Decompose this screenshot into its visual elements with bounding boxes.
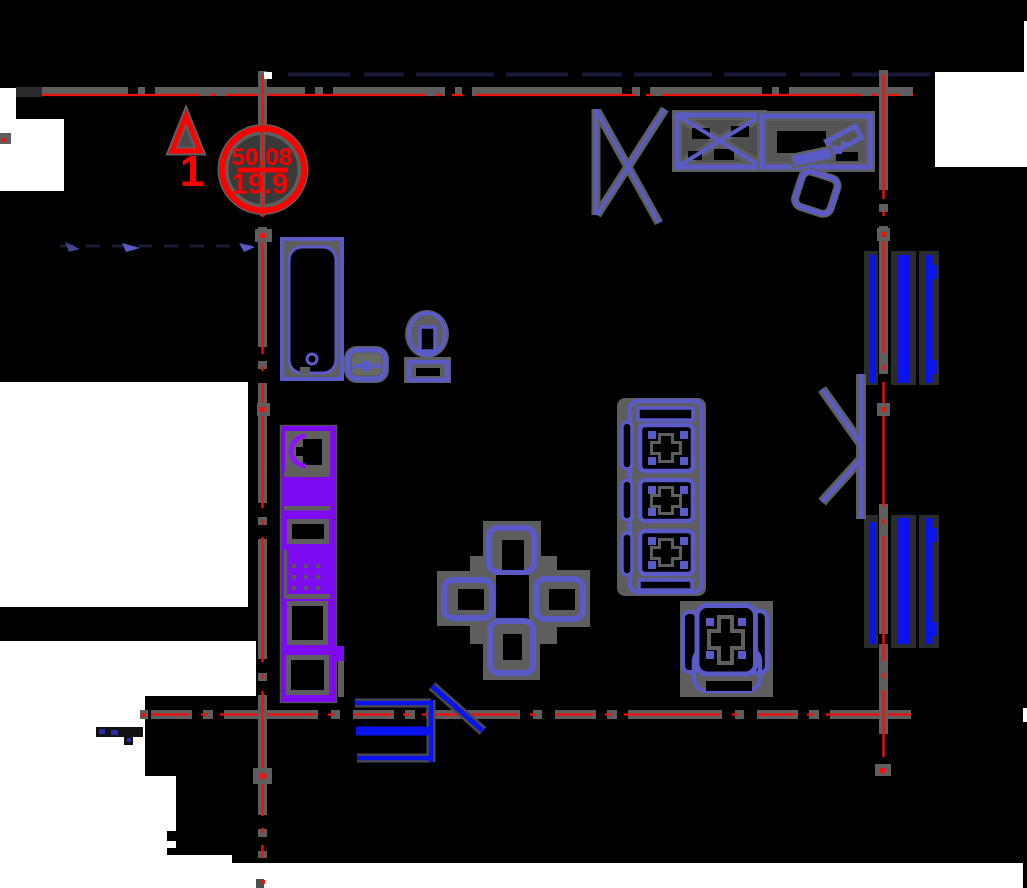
svg-text:1: 1 xyxy=(180,147,204,196)
svg-text:50.08: 50.08 xyxy=(231,144,292,171)
svg-text:19.9: 19.9 xyxy=(232,169,288,201)
